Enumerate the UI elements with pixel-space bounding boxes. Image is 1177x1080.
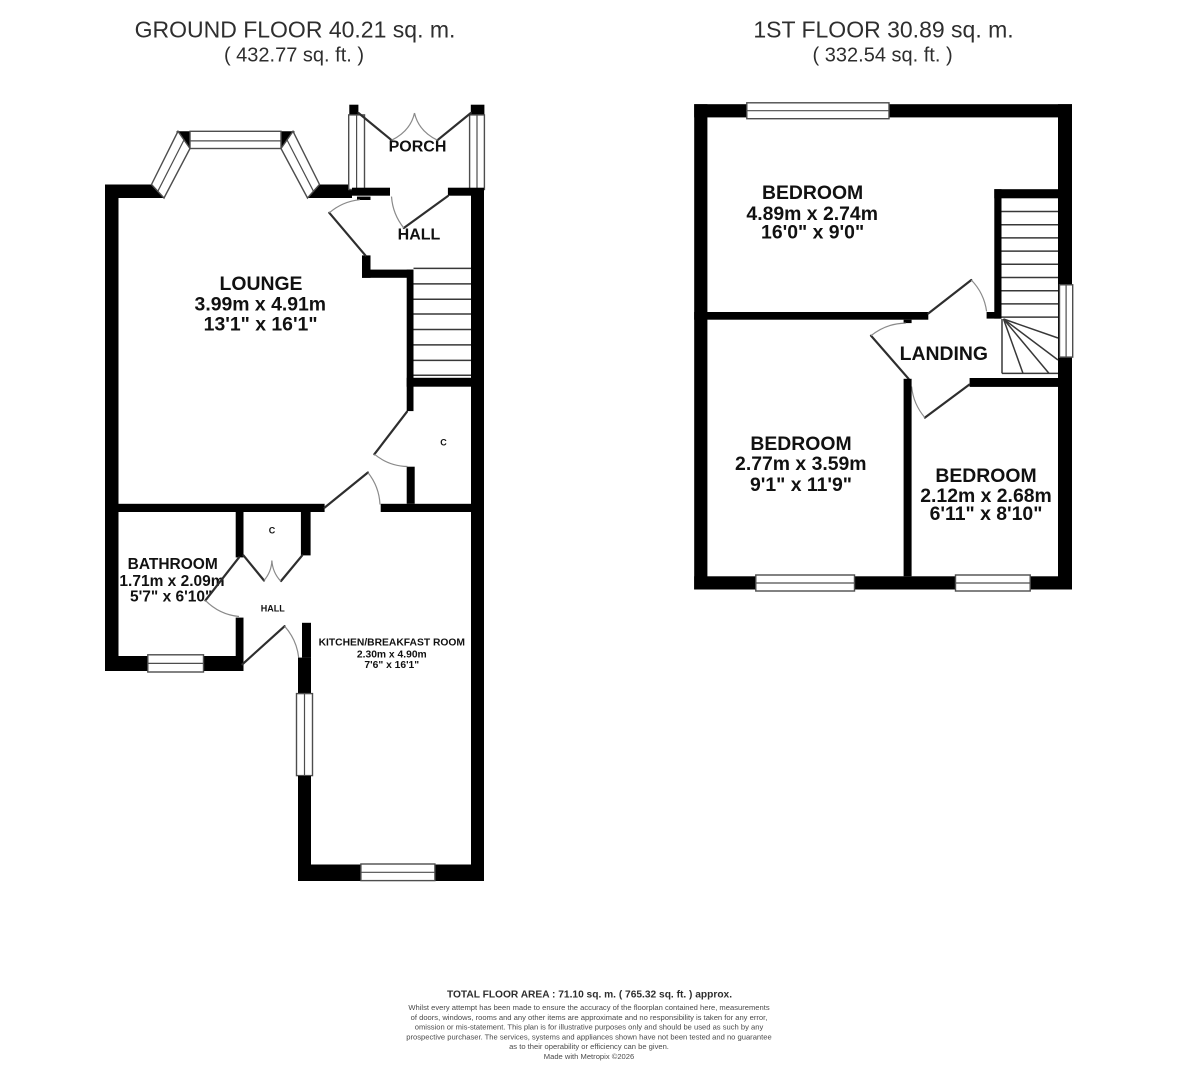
svg-text:BEDROOM: BEDROOM <box>935 465 1036 487</box>
svg-text:( 432.77 sq. ft. ): ( 432.77 sq. ft. ) <box>224 44 364 66</box>
svg-text:1.71m x 2.09m: 1.71m x 2.09m <box>119 573 224 590</box>
svg-text:7'6" x 16'1": 7'6" x 16'1" <box>364 660 419 671</box>
svg-text:BEDROOM: BEDROOM <box>750 433 851 455</box>
svg-text:C: C <box>440 438 447 448</box>
svg-text:Whilst every attempt has been: Whilst every attempt has been made to en… <box>408 1003 770 1012</box>
svg-text:HALL: HALL <box>261 604 285 614</box>
svg-text:LOUNGE: LOUNGE <box>220 273 303 295</box>
svg-text:omission or mis-statement. Thi: omission or mis-statement. This plan is … <box>415 1023 764 1032</box>
svg-text:of doors, windows, rooms and a: of doors, windows, rooms and any other i… <box>411 1013 768 1022</box>
svg-text:TOTAL FLOOR AREA : 71.10 sq. m: TOTAL FLOOR AREA : 71.10 sq. m. ( 765.32… <box>447 990 732 1001</box>
svg-text:2.77m x 3.59m: 2.77m x 3.59m <box>735 453 867 475</box>
svg-text:3.99m x 4.91m: 3.99m x 4.91m <box>195 293 327 315</box>
svg-text:6'11" x 8'10": 6'11" x 8'10" <box>930 503 1043 525</box>
svg-text:Made with Metropix ©2026: Made with Metropix ©2026 <box>544 1052 634 1061</box>
svg-text:13'1" x 16'1": 13'1" x 16'1" <box>204 313 318 335</box>
svg-text:GROUND FLOOR 40.21 sq. m.: GROUND FLOOR 40.21 sq. m. <box>135 17 456 43</box>
svg-text:9'1" x 11'9": 9'1" x 11'9" <box>750 474 852 496</box>
svg-text:KITCHEN/BREAKFAST ROOM: KITCHEN/BREAKFAST ROOM <box>319 638 465 649</box>
svg-text:as to their operability or eff: as to their operability or efficiency ca… <box>509 1042 669 1051</box>
svg-text:( 332.54 sq. ft. ): ( 332.54 sq. ft. ) <box>813 44 953 66</box>
svg-text:prospective purchaser. The ser: prospective purchaser. The services, sys… <box>406 1032 771 1041</box>
svg-text:BEDROOM: BEDROOM <box>762 182 863 204</box>
svg-text:1ST FLOOR 30.89 sq. m.: 1ST FLOOR 30.89 sq. m. <box>753 17 1013 43</box>
svg-text:5'7" x 6'10": 5'7" x 6'10" <box>130 588 212 605</box>
svg-text:LANDING: LANDING <box>900 343 988 365</box>
svg-text:BATHROOM: BATHROOM <box>128 556 218 573</box>
svg-text:C: C <box>269 526 276 536</box>
svg-text:16'0" x 9'0": 16'0" x 9'0" <box>761 222 864 244</box>
